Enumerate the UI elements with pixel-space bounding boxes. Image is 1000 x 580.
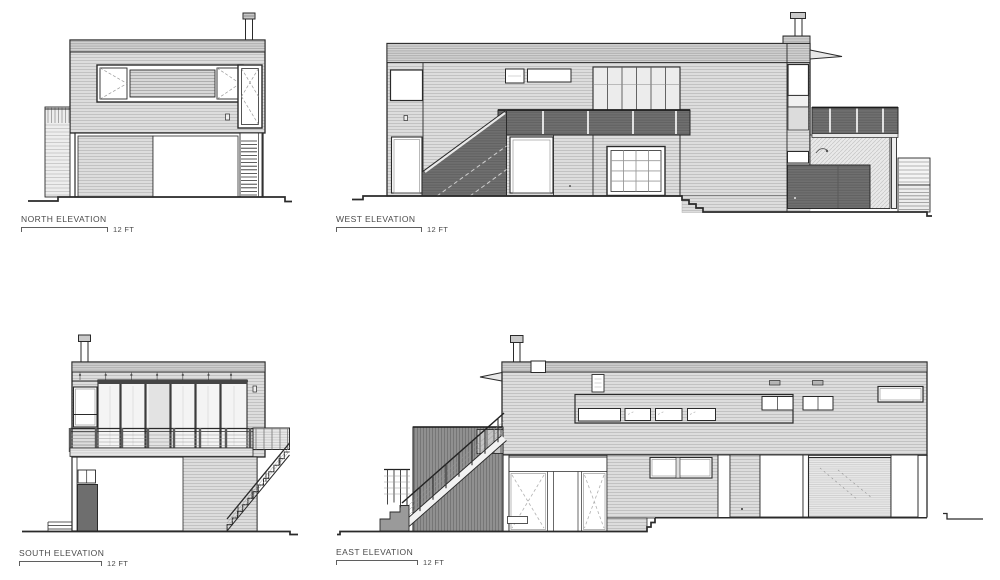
south-chimney	[79, 335, 91, 362]
east-right-window	[878, 387, 923, 403]
west-scale-label: 12 FT	[427, 225, 448, 234]
east-vent-right	[813, 381, 824, 386]
east-lower-level	[502, 455, 927, 532]
south-elevation-label: SOUTH ELEVATION	[19, 549, 128, 558]
south-entry-steps	[48, 522, 72, 531]
south-left-window	[74, 387, 98, 427]
east-door-hardware	[741, 508, 743, 510]
east-roof-band	[502, 362, 927, 372]
east-elevation-caption: EAST ELEVATION 12 FT	[336, 548, 444, 567]
south-elevation-caption: SOUTH ELEVATION 12 FT	[19, 549, 128, 568]
north-scale-bar	[21, 227, 108, 232]
west-gate	[788, 165, 871, 209]
south-scale-bar	[19, 561, 102, 566]
north-lower-level	[75, 133, 263, 197]
south-roof-band	[72, 362, 265, 372]
west-parapet	[783, 36, 810, 44]
west-upper-window	[391, 70, 423, 101]
east-canopy	[480, 373, 502, 382]
south-lower-siding	[183, 457, 257, 531]
east-chimney	[511, 336, 524, 363]
north-elevation-label: NORTH ELEVATION	[21, 215, 134, 224]
north-chimney	[243, 13, 255, 42]
west-left-door	[392, 137, 423, 193]
east-lower-window	[650, 458, 712, 479]
elevation-sheet: NORTH ELEVATION 12 FT WEST ELEVATION 12 …	[0, 0, 1000, 580]
east-elevation-label: EAST ELEVATION	[336, 548, 444, 557]
north-tall-window	[238, 65, 262, 128]
north-lower-siding	[78, 136, 153, 197]
north-exterior-stair	[240, 133, 262, 197]
north-window-band	[97, 65, 243, 102]
west-light-fixture	[404, 116, 408, 121]
south-elevation-drawing	[0, 330, 330, 580]
west-roof-band	[387, 44, 810, 63]
east-opening	[760, 455, 803, 517]
north-elevation-caption: NORTH ELEVATION 12 FT	[21, 215, 134, 234]
south-glazing-wall	[98, 380, 247, 448]
north-elevation-drawing	[0, 0, 330, 250]
north-side-trellis	[45, 107, 70, 197]
north-scale-label: 12 FT	[113, 225, 134, 234]
east-scale-bar	[336, 560, 418, 565]
west-chimney	[791, 13, 806, 37]
south-lower-door	[78, 485, 98, 532]
east-door-stoop	[508, 517, 528, 524]
west-deck-railing	[812, 108, 898, 138]
west-window-wall	[593, 67, 680, 112]
north-garage-opening	[153, 136, 238, 197]
north-light-fixture	[226, 114, 230, 120]
west-small-windows	[506, 69, 572, 83]
east-roof-vent	[531, 361, 546, 373]
south-scale-label: 12 FT	[107, 559, 128, 568]
west-balcony-railing	[498, 110, 690, 135]
east-wall-vent	[592, 375, 604, 393]
east-pier	[718, 455, 730, 518]
south-light-fixture	[253, 386, 257, 392]
west-elevation-drawing	[330, 0, 1000, 250]
west-entry-door	[510, 137, 553, 193]
west-side-stair	[898, 158, 930, 212]
west-vent-box	[788, 152, 809, 164]
east-scale-label: 12 FT	[423, 558, 444, 567]
north-ground-line	[28, 197, 292, 202]
west-porch-post	[892, 135, 897, 209]
west-scale-bar	[336, 227, 422, 232]
west-door-hardware	[569, 185, 571, 187]
west-canopy	[810, 50, 842, 59]
east-elevation-drawing	[330, 330, 1000, 580]
east-vent-left	[770, 381, 781, 386]
west-elevation-label: WEST ELEVATION	[336, 215, 448, 224]
west-elevation-caption: WEST ELEVATION 12 FT	[336, 215, 448, 234]
east-garage-door	[809, 458, 892, 518]
